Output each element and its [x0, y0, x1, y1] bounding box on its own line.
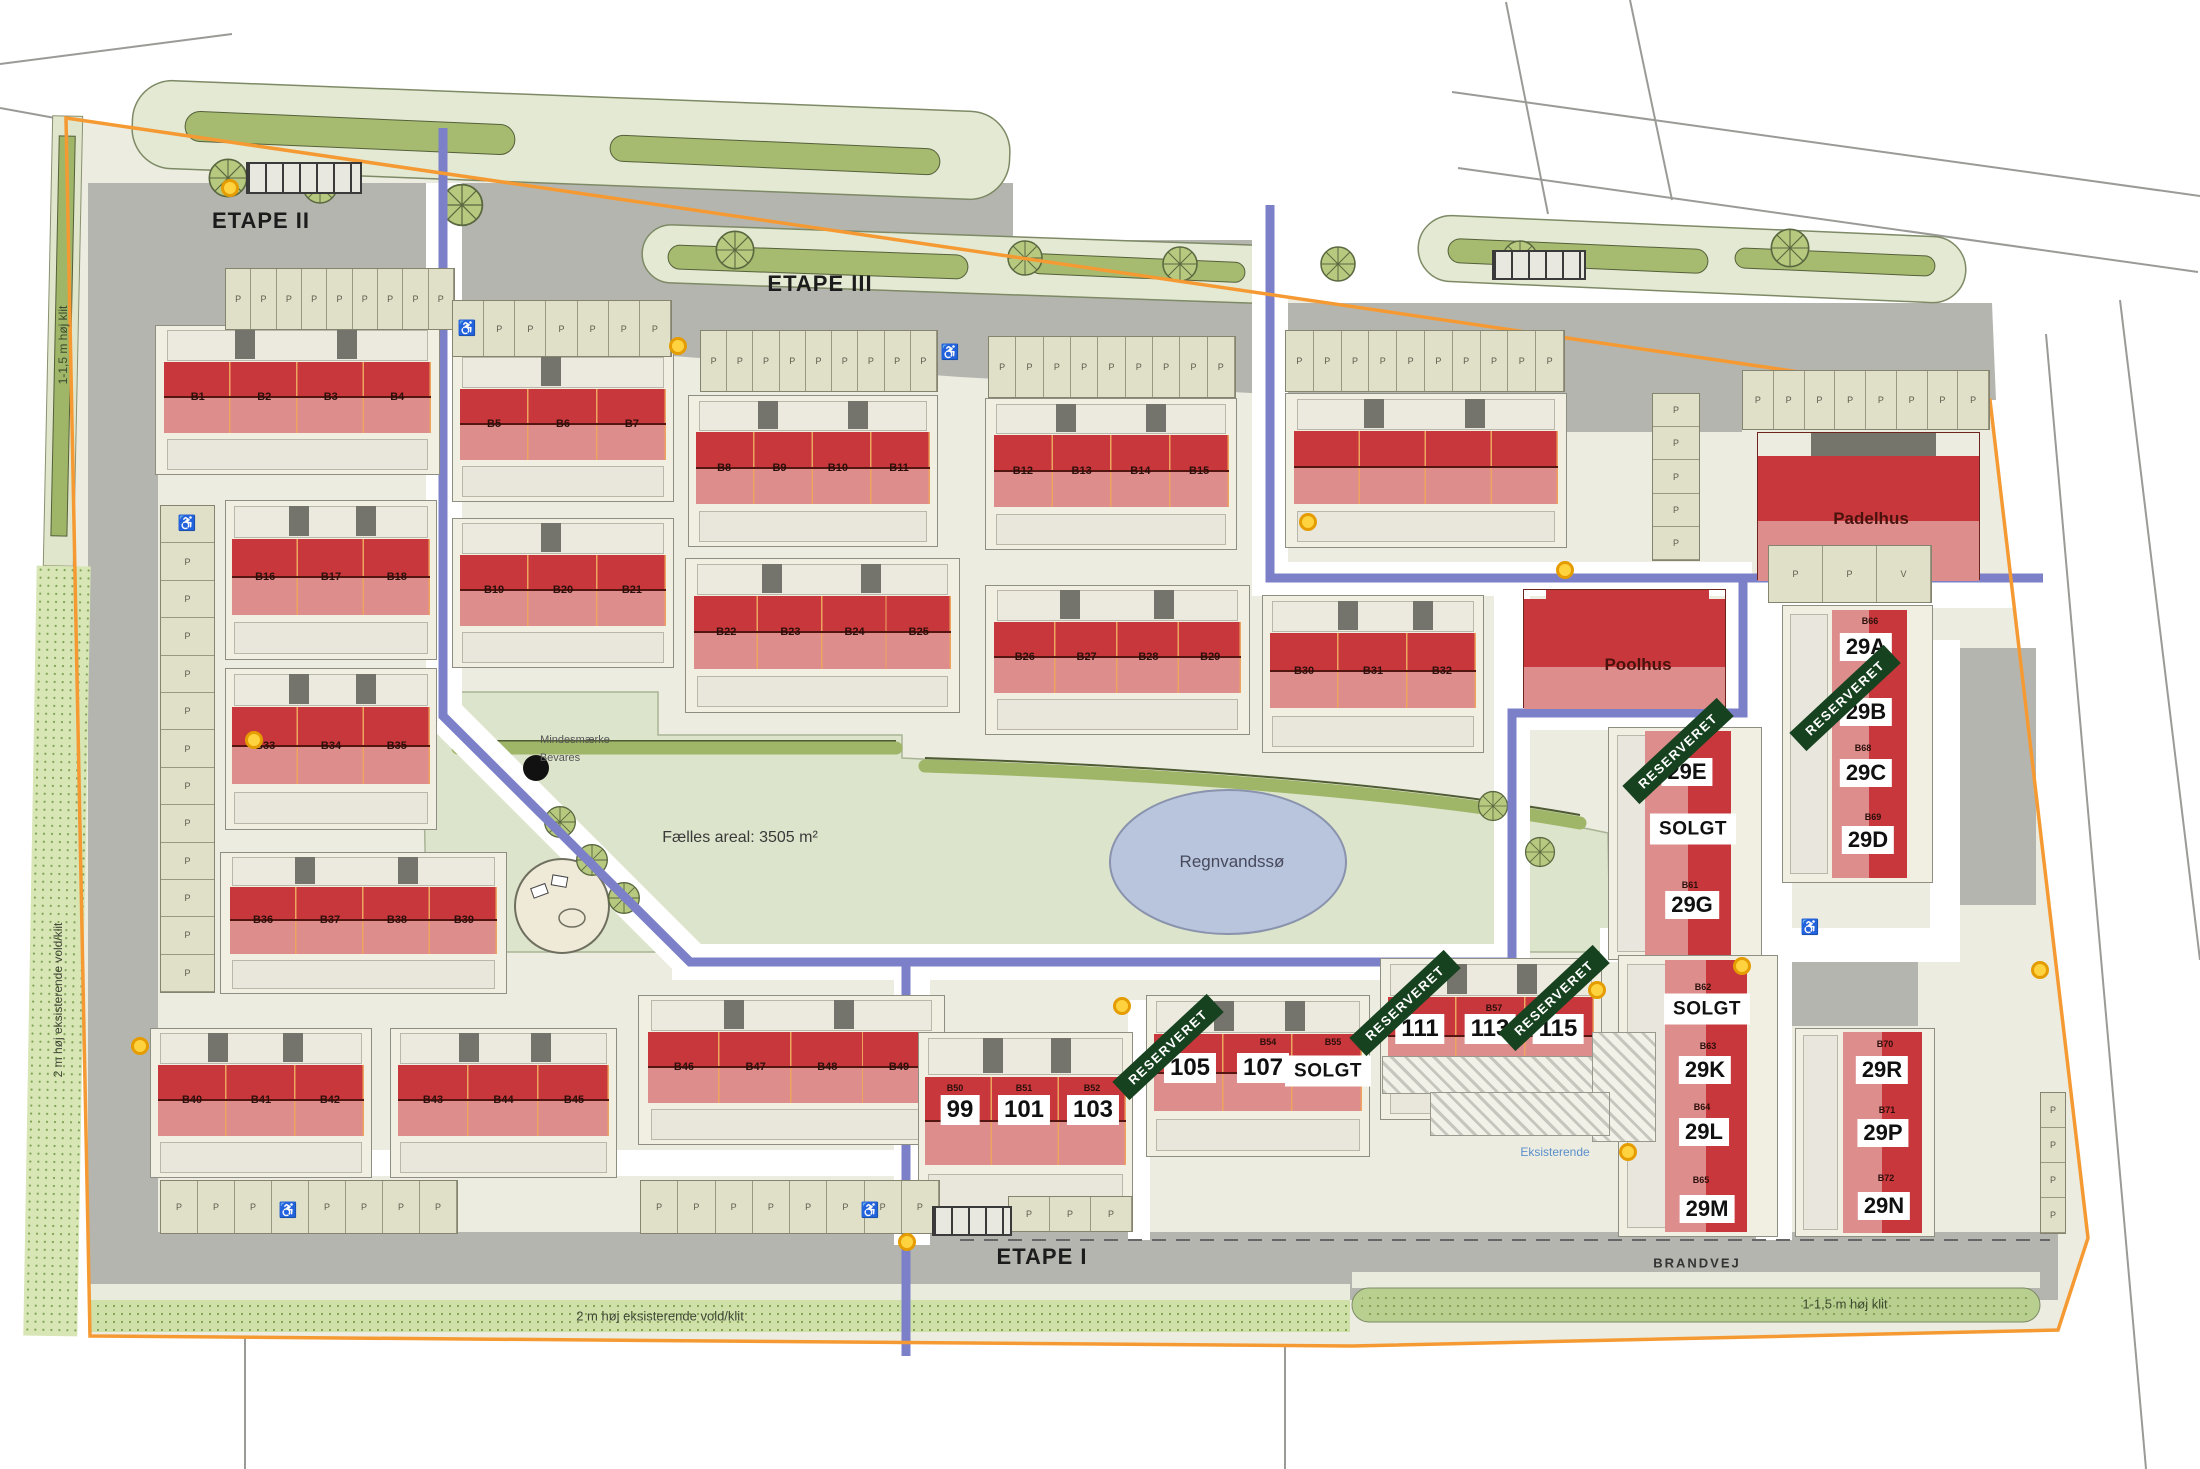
- parking-stall-label: P: [1653, 427, 1699, 460]
- parking-stall-label: P: [429, 269, 454, 329]
- parking-stall-label: P: [1653, 527, 1699, 560]
- parking-stall-label: P: [420, 1181, 457, 1233]
- plot-id: B71: [1879, 1105, 1896, 1115]
- unit-label: B8: [717, 462, 731, 474]
- parking-stall-label: P: [1126, 337, 1153, 397]
- parking-stall-label: P: [1453, 331, 1481, 391]
- parking-stall-label: P: [1369, 331, 1397, 391]
- unit-badge-29l[interactable]: 29L: [1679, 1118, 1729, 1146]
- parking-stall-label: P: [1208, 337, 1235, 397]
- dune-label-left-top: 1-1,5 m høj klit: [56, 306, 70, 385]
- parking-stall-label: P: [832, 331, 858, 391]
- parking-stall-label: P: [353, 269, 378, 329]
- street-light: [245, 731, 263, 749]
- unit-label: B44: [493, 1094, 513, 1106]
- handicap-parking-icon: ♿: [1801, 918, 1820, 936]
- handicap-parking-icon: ♿: [178, 514, 197, 532]
- parking-stall-label: P: [235, 1181, 272, 1233]
- existing-label: Eksisterende: [1520, 1145, 1589, 1159]
- unit-label: B6: [556, 418, 570, 430]
- unit-label: B47: [746, 1061, 766, 1073]
- parking-stall-label: P: [1009, 1197, 1050, 1231]
- parking-stall-label: P: [161, 805, 214, 842]
- unit-label: B37: [320, 914, 340, 926]
- parking-stall-label: P: [1835, 371, 1866, 429]
- parking-stall-label: P: [251, 269, 276, 329]
- parking-stall-label: P: [161, 917, 214, 954]
- unit-labels: B43B44B45: [398, 1065, 610, 1136]
- unit-labels: B46B47B48B49: [648, 1032, 935, 1103]
- unit-label: B16: [255, 571, 275, 583]
- handicap-parking-icon: ♿: [279, 1201, 298, 1219]
- unit-label: B40: [182, 1094, 202, 1106]
- unit-badge-99[interactable]: 99: [941, 1095, 980, 1125]
- parking-strip: PPPPPPPPPPPPP: [160, 505, 215, 993]
- parking-stall-label: P: [827, 1181, 864, 1233]
- parking-stall-label: P: [302, 269, 327, 329]
- unit-label: B22: [716, 626, 736, 638]
- parking-stall-label: P: [1153, 337, 1180, 397]
- parking-stall-label: P: [1425, 331, 1453, 391]
- unit-label: B13: [1072, 465, 1092, 477]
- shed: [235, 330, 255, 358]
- unit-label: B43: [423, 1094, 443, 1106]
- parking-stall-label: P: [226, 269, 251, 329]
- handicap-parking-icon: ♿: [861, 1201, 880, 1219]
- parking-stall-label: P: [806, 331, 832, 391]
- parking-stall-label: P: [327, 269, 352, 329]
- parking-stall-label: P: [546, 301, 577, 356]
- parking-stall-label: P: [515, 301, 546, 356]
- unit-label: B25: [909, 626, 929, 638]
- poolhus-building: [1523, 589, 1726, 708]
- padelhus-label: Padelhus: [1833, 509, 1909, 529]
- parking-stall-label: P: [578, 301, 609, 356]
- unit-labels: B26B27B28B29: [994, 622, 1241, 693]
- unit-labels: B5B6B7: [460, 389, 667, 460]
- unit-label: B26: [1015, 651, 1035, 663]
- parking-stall-label: P: [1050, 1197, 1091, 1231]
- unit-labels: B22B23B24B25: [694, 596, 951, 669]
- parking-strip: PPPPP: [1652, 393, 1700, 561]
- housing-block-b12-b15: B12B13B14B15: [985, 398, 1237, 550]
- plot-id: B65: [1693, 1175, 1710, 1185]
- housing-block-b30-b32: B30B31B32: [1262, 595, 1484, 753]
- unit-badge-29n[interactable]: 29N: [1858, 1192, 1910, 1220]
- unit-badge-29p[interactable]: 29P: [1857, 1119, 1908, 1147]
- bike-rack: [1492, 250, 1586, 280]
- housing-block-unlabeled: [1285, 393, 1567, 548]
- street-light: [1733, 957, 1751, 975]
- parking-stall-label: V: [1877, 546, 1931, 602]
- common-area-label: Fælles areal: 3505 m²: [662, 829, 818, 847]
- parking-stall-label: P: [1098, 337, 1125, 397]
- unit-label: B14: [1130, 465, 1150, 477]
- parking-stall-label: P: [161, 730, 214, 767]
- unit-label: B4: [390, 391, 404, 403]
- unit-label: B7: [625, 418, 639, 430]
- parking-stall-label: P: [609, 301, 640, 356]
- plot-id: B52: [1084, 1083, 1101, 1093]
- parking-stall-label: P: [1342, 331, 1370, 391]
- parking-strip-ppv: P P V: [1768, 545, 1932, 603]
- street-light: [2031, 961, 2049, 979]
- parking-stall-label: P: [484, 301, 515, 356]
- unit-labels: B30B31B32: [1270, 633, 1477, 708]
- parking-stall-label: P: [378, 269, 403, 329]
- poolhus-label: Poolhus: [1604, 655, 1671, 675]
- parking-stall-label: P: [1016, 337, 1043, 397]
- parking-stall-label: P: [885, 331, 911, 391]
- unit-label: B21: [622, 584, 642, 596]
- parking-strip: PPPPPPP: [452, 300, 672, 357]
- handicap-parking-icon: ♿: [458, 319, 477, 337]
- plot-id: B50: [947, 1083, 964, 1093]
- unit-label: B19: [484, 584, 504, 596]
- parking-stall-label: P: [2041, 1128, 2065, 1163]
- parking-stall-label: P: [1805, 371, 1836, 429]
- parking-strip: PPPPPPPP: [160, 1180, 458, 1234]
- unit-label: B31: [1363, 665, 1383, 677]
- street-light: [1619, 1143, 1637, 1161]
- parking-stall-label: P: [161, 581, 214, 618]
- bike-rack: [932, 1206, 1012, 1236]
- parking-stall-label: P: [989, 337, 1016, 397]
- parking-stall-label: P: [2041, 1093, 2065, 1128]
- housing-block-b46-b49: B46B47B48B49: [638, 995, 945, 1145]
- unit-badge-29c[interactable]: 29C: [1840, 759, 1892, 787]
- parking-stall-label: P: [1897, 371, 1928, 429]
- phase-label-etape-ii: ETAPE II: [212, 208, 310, 234]
- parking-stall-label: P: [277, 269, 302, 329]
- parking-stall-label: P: [753, 1181, 790, 1233]
- unit-label: B12: [1013, 465, 1033, 477]
- unit-label: B48: [817, 1061, 837, 1073]
- parking-stall-label: P: [790, 1181, 827, 1233]
- parking-strip: PPP: [1008, 1196, 1133, 1232]
- unit-badge-29r[interactable]: 29R: [1856, 1056, 1908, 1084]
- unit-badge-29d[interactable]: 29D: [1842, 826, 1894, 854]
- parking-stall-label: P: [716, 1181, 753, 1233]
- parking-stall-label: P: [161, 880, 214, 917]
- parking-stall-label: P: [1958, 371, 1989, 429]
- housing-block-b22-b25: B22B23B24B25: [685, 558, 960, 713]
- plot-id: B54: [1260, 1037, 1277, 1047]
- unit-label: B20: [553, 584, 573, 596]
- housing-block-b26-b29: B26B27B28B29: [985, 585, 1250, 735]
- parking-stall-label: P: [780, 331, 806, 391]
- parking-stall-label: P: [1928, 371, 1959, 429]
- unit-labels: B8B9B10B11: [696, 432, 929, 504]
- hatched-area: [1430, 1092, 1610, 1136]
- unit-label: B18: [387, 571, 407, 583]
- parking-stall-label: P: [858, 331, 884, 391]
- parking-stall-label: P: [1508, 331, 1536, 391]
- handicap-parking-icon: ♿: [941, 343, 960, 361]
- unit-label: B28: [1138, 651, 1158, 663]
- parking-strip: PPPPPPPP: [640, 1180, 940, 1234]
- parking-stall-label: P: [753, 331, 779, 391]
- parking-stall-label: P: [1180, 337, 1207, 397]
- unit-label: B30: [1294, 665, 1314, 677]
- parking-stall-label: P: [403, 269, 428, 329]
- unit-label: B2: [257, 391, 271, 403]
- parking-stall-label: P: [1091, 1197, 1132, 1231]
- housing-block-b8-b11: B8B9B10B11: [688, 395, 938, 547]
- parking-stall-label: P: [1536, 331, 1564, 391]
- street-light: [1299, 513, 1317, 531]
- parking-stall-label: P: [1653, 394, 1699, 427]
- parking-stall-label: P: [727, 331, 753, 391]
- unit-labels: B40B41B42: [158, 1065, 365, 1136]
- parking-strip: PPPPPPPPP: [700, 330, 938, 392]
- plot-id: B69: [1865, 812, 1882, 822]
- unit-label: B32: [1432, 665, 1452, 677]
- street-light: [1556, 561, 1574, 579]
- plot-id: B66: [1862, 616, 1879, 626]
- unit-label: B23: [780, 626, 800, 638]
- plot-id: B63: [1700, 1041, 1717, 1051]
- unit-label: B34: [321, 740, 341, 752]
- garden-strip: [167, 439, 427, 469]
- parking-strip: PPPPPPPP: [1742, 370, 1990, 430]
- street-light: [1113, 997, 1131, 1015]
- dune-label-bottom-right: 1-1,5 m høj klit: [1802, 1297, 1887, 1312]
- parking-stall-label: P: [678, 1181, 715, 1233]
- unit-badge-101[interactable]: 101: [998, 1095, 1050, 1125]
- parking-stall-label: P: [1397, 331, 1425, 391]
- phase-label-etape-i: ETAPE I: [997, 1244, 1088, 1270]
- plot-id: B57: [1486, 1003, 1503, 1013]
- parking-stall-label: P: [1653, 460, 1699, 493]
- unit-labels: B12B13B14B15: [994, 435, 1229, 507]
- parking-stall-label: P: [1314, 331, 1342, 391]
- housing-block-b33-b35: B33B34B35: [225, 668, 437, 830]
- bike-rack: [246, 162, 362, 194]
- unit-label: B1: [191, 391, 205, 403]
- parking-strip: PPPPPPPPPP: [1285, 330, 1565, 392]
- parking-stall-label: P: [701, 331, 727, 391]
- hatched-area: [1382, 1056, 1612, 1094]
- unit-label: B42: [320, 1094, 340, 1106]
- parking-stall-label: P: [1286, 331, 1314, 391]
- unit-label: B41: [251, 1094, 271, 1106]
- housing-block-b40-b42: B40B41B42: [150, 1028, 372, 1178]
- memorial-label-line1: Mindesmærke: [540, 734, 610, 746]
- parking-stall-label: P: [346, 1181, 383, 1233]
- parking-stall-label: P: [161, 768, 214, 805]
- housing-block-b1-b4: B1B2B3B4: [155, 325, 440, 475]
- memorial-label-line2: Bevares: [540, 752, 580, 764]
- parking-stall-label: P: [198, 1181, 235, 1233]
- housing-block-b43-b45: B43B44B45: [390, 1028, 617, 1178]
- housing-block-b36-b39: B36B37B38B39: [220, 852, 507, 994]
- plot-id: B72: [1878, 1173, 1895, 1183]
- street-light: [1588, 981, 1606, 999]
- street-light: [221, 179, 239, 197]
- unit-badge-103[interactable]: 103: [1067, 1095, 1119, 1125]
- unit-labels: B16B17B18: [232, 539, 429, 615]
- parking-stall-label: P: [911, 331, 937, 391]
- parking-strip: PPPPPPPPP: [988, 336, 1236, 398]
- parking-stall-label: P: [640, 301, 671, 356]
- unit-badge-107[interactable]: 107: [1237, 1053, 1289, 1083]
- parking-stall-label: P: [161, 693, 214, 730]
- parking-stall-label: P: [161, 843, 214, 880]
- unit-badge-29g[interactable]: 29G: [1665, 891, 1719, 919]
- unit-label: B35: [387, 740, 407, 752]
- unit-label: B38: [387, 914, 407, 926]
- plot-id: B55: [1325, 1037, 1342, 1047]
- plot-id: B62: [1695, 982, 1712, 992]
- parking-stall-label: P: [1743, 371, 1774, 429]
- unit-label: B27: [1077, 651, 1097, 663]
- pond-label: Regnvandssø: [1180, 852, 1285, 872]
- road-label-brandvej: BRANDVEJ: [1653, 1256, 1741, 1271]
- parking-stall-label: P: [161, 656, 214, 693]
- housing-block-b19-b21: B19B20B21: [452, 518, 674, 668]
- dune-label-bottom: 2 m høj eksisterende vold/klit: [576, 1309, 744, 1324]
- street-light: [898, 1233, 916, 1251]
- plot-id: B61: [1682, 880, 1699, 890]
- parking-stall-label: P: [1044, 337, 1071, 397]
- parking-stall-label: P: [161, 955, 214, 992]
- parking-stall-label: P: [1071, 337, 1098, 397]
- unit-label: B46: [674, 1061, 694, 1073]
- parking-stall-label: P: [641, 1181, 678, 1233]
- unit-label: B24: [844, 626, 864, 638]
- phase-label-etape-iii: ETAPE III: [767, 271, 872, 297]
- unit-labels: B36B37B38B39: [230, 887, 498, 954]
- parking-stall-label: P: [1481, 331, 1509, 391]
- parking-strip: PPPP: [2040, 1092, 2066, 1234]
- plot-id: B51: [1016, 1083, 1033, 1093]
- parking-stall-label: P: [1653, 494, 1699, 527]
- parking-stall-label: P: [2041, 1198, 2065, 1233]
- unit-label: B3: [324, 391, 338, 403]
- unit-label: B5: [487, 418, 501, 430]
- parking-stall-label: P: [1823, 546, 1877, 602]
- unit-label: B17: [321, 571, 341, 583]
- parking-stall-label: P: [1866, 371, 1897, 429]
- street-light: [131, 1037, 149, 1055]
- status-badge-sold[interactable]: SOLGT: [1285, 1056, 1371, 1087]
- status-badge-sold[interactable]: SOLGT: [1664, 994, 1750, 1025]
- unit-label: B9: [772, 462, 786, 474]
- parking-stall-label: P: [1769, 546, 1823, 602]
- unit-labels: B1B2B3B4: [164, 362, 430, 433]
- housing-block-b16-b18: B16B17B18: [225, 500, 437, 660]
- unit-label: B45: [564, 1094, 584, 1106]
- dune-label-left-bottom: 2 m høj eksisterende vold/klit: [51, 923, 65, 1078]
- unit-label: B49: [889, 1061, 909, 1073]
- street-light: [669, 337, 687, 355]
- plot-id: B70: [1877, 1039, 1894, 1049]
- garden-strip: [167, 330, 427, 360]
- unit-labels: B33B34B35: [232, 707, 429, 784]
- housing-block-b5-b7: B5B6B7: [452, 352, 674, 502]
- unit-label: B29: [1200, 651, 1220, 663]
- unit-label: B39: [454, 914, 474, 926]
- parking-stall-label: P: [2041, 1163, 2065, 1198]
- unit-label: B36: [253, 914, 273, 926]
- parking-stall-label: P: [309, 1181, 346, 1233]
- plot-id: B64: [1694, 1102, 1711, 1112]
- parking-stall-label: P: [383, 1181, 420, 1233]
- unit-badge-29m[interactable]: 29M: [1680, 1195, 1735, 1223]
- unit-label: B15: [1189, 465, 1209, 477]
- parking-stall-label: P: [161, 1181, 198, 1233]
- unit-label: B10: [828, 462, 848, 474]
- parking-stall-label: P: [1774, 371, 1805, 429]
- status-badge-sold[interactable]: SOLGT: [1650, 814, 1736, 845]
- unit-label: B11: [889, 462, 909, 474]
- unit-badge-29k[interactable]: 29K: [1679, 1056, 1731, 1084]
- parking-strip: PPPPPPPPP: [225, 268, 455, 330]
- parking-stall-label: P: [161, 543, 214, 580]
- parking-stall-label: P: [161, 618, 214, 655]
- shed: [337, 330, 357, 358]
- unit-labels: B19B20B21: [460, 555, 667, 626]
- plot-id: B68: [1855, 743, 1872, 753]
